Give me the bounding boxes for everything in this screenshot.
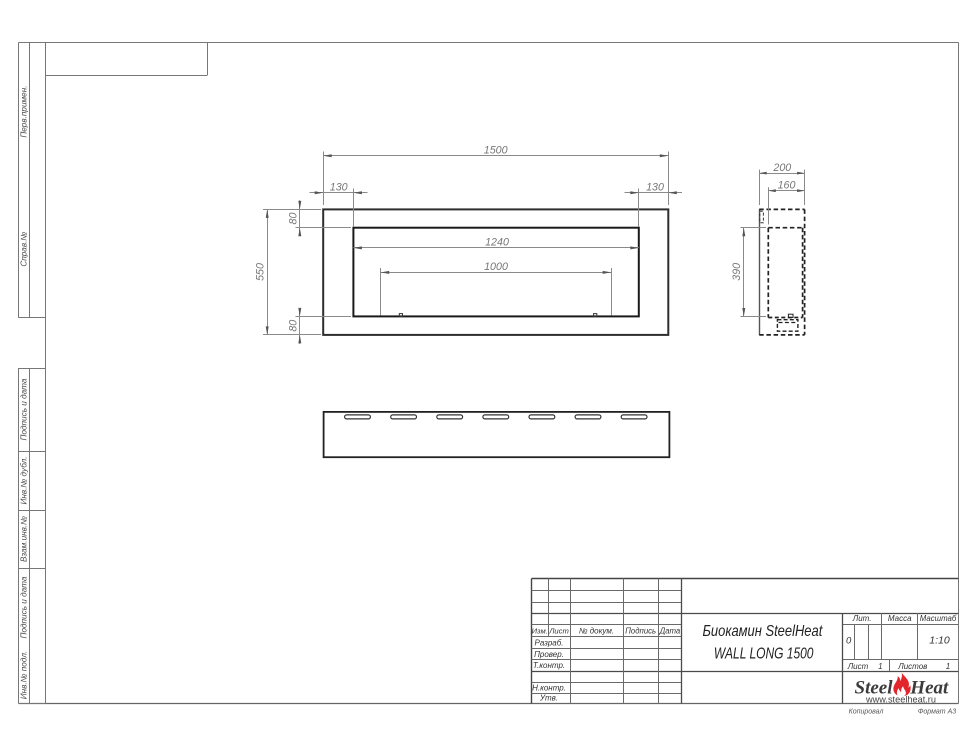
svg-text:www.steelheat.ru: www.steelheat.ru	[865, 694, 936, 704]
svg-text:1: 1	[878, 662, 882, 671]
svg-text:Копировал: Копировал	[849, 709, 884, 716]
svg-text:Справ.№: Справ.№	[20, 232, 29, 267]
svg-text:Н.контр.: Н.контр.	[532, 684, 566, 693]
svg-text:80: 80	[287, 320, 299, 332]
svg-text:Разраб.: Разраб.	[535, 638, 564, 647]
svg-text:Лист: Лист	[847, 662, 869, 671]
svg-text:Подпись и дата: Подпись и дата	[20, 576, 29, 638]
svg-text:1500: 1500	[484, 144, 508, 156]
svg-text:Перв.примен.: Перв.примен.	[20, 86, 29, 138]
svg-text:0: 0	[846, 636, 852, 647]
svg-text:WALL LONG 1500: WALL LONG 1500	[714, 644, 814, 662]
svg-text:1000: 1000	[484, 261, 508, 273]
svg-text:1:10: 1:10	[929, 635, 950, 647]
svg-text:Подпись: Подпись	[625, 626, 656, 635]
svg-text:550: 550	[254, 263, 266, 281]
svg-text:1240: 1240	[485, 237, 509, 249]
svg-text:130: 130	[646, 181, 664, 193]
svg-text:Инв.№ дубл.: Инв.№ дубл.	[20, 456, 29, 504]
svg-text:80: 80	[287, 213, 299, 225]
svg-text:Формат А3: Формат А3	[918, 709, 956, 716]
svg-text:Утв.: Утв.	[539, 694, 558, 703]
svg-text:200: 200	[772, 162, 791, 174]
svg-text:Масса: Масса	[888, 614, 912, 623]
svg-text:Подпись и дата: Подпись и дата	[20, 378, 29, 440]
svg-text:Провер.: Провер.	[534, 650, 564, 659]
svg-text:160: 160	[778, 179, 796, 191]
svg-text:Масштаб: Масштаб	[920, 614, 957, 623]
svg-text:130: 130	[330, 181, 348, 193]
svg-text:Листов: Листов	[897, 662, 927, 671]
svg-text:Взам.инв.№: Взам.инв.№	[20, 516, 29, 562]
svg-text:Т.контр.: Т.контр.	[533, 661, 565, 670]
svg-text:Дата: Дата	[659, 626, 681, 635]
svg-text:Изм.: Изм.	[532, 626, 548, 635]
svg-text:Лит.: Лит.	[852, 614, 872, 623]
svg-text:Инв.№ подл.: Инв.№ подл.	[20, 651, 29, 700]
svg-text:390: 390	[731, 263, 743, 281]
svg-text:1: 1	[946, 662, 950, 671]
svg-text:Биокамин SteelHeat: Биокамин SteelHeat	[703, 623, 824, 640]
svg-text:Лист: Лист	[548, 626, 569, 635]
svg-text:№ докум.: № докум.	[579, 626, 614, 635]
